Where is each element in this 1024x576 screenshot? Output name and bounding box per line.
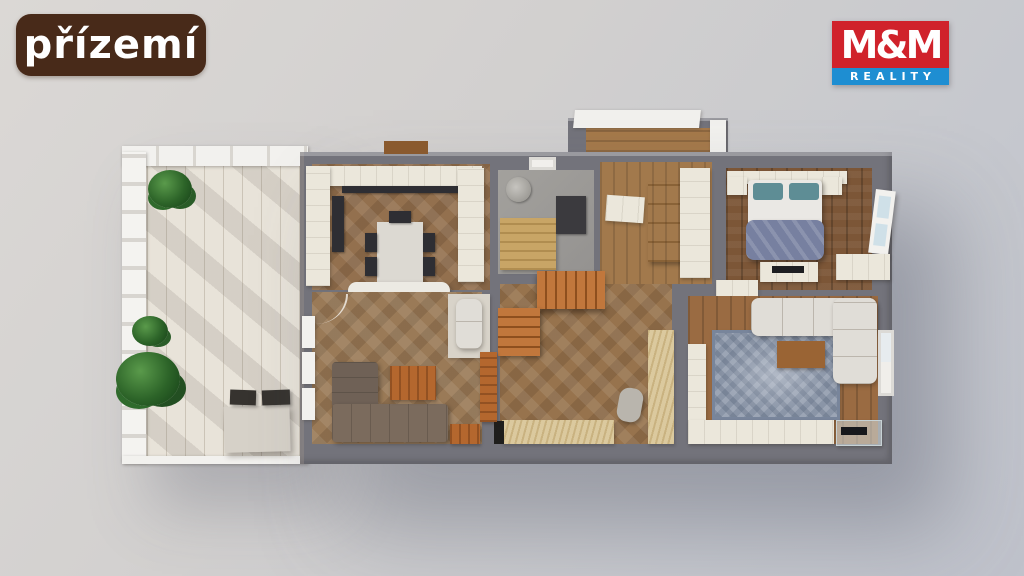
terrace (122, 146, 308, 464)
coffee-table (777, 341, 825, 368)
white-armchair (456, 299, 482, 349)
dining-chair (365, 257, 377, 276)
mm-reality-logo: M&M REALITY (832, 21, 949, 85)
sectional-sofa-right (833, 298, 877, 384)
door-glass-pane (873, 223, 888, 246)
shower (506, 177, 531, 202)
plant (116, 352, 180, 406)
nightstand (727, 177, 747, 195)
door-glass-pane (877, 195, 892, 218)
fridge (332, 196, 344, 252)
staircase-lower-run (498, 308, 540, 356)
entry-shelf (605, 195, 645, 224)
toilet-fixture (556, 196, 586, 234)
bed-duvet (746, 220, 824, 260)
terrace-chair (262, 390, 291, 406)
den-window (302, 388, 315, 420)
dining-chair (365, 233, 377, 252)
pergola-beam (122, 146, 308, 166)
house (300, 110, 900, 464)
den-sofa-seat (332, 404, 448, 442)
bathroom-window (529, 157, 556, 170)
dining-table (377, 222, 423, 284)
den-window (302, 316, 315, 348)
dining-chair (389, 211, 411, 223)
den-desk (480, 352, 497, 422)
terrace-chair (230, 390, 257, 406)
entry-wardrobe (680, 168, 710, 278)
den-stool (450, 424, 480, 444)
terrace-table (223, 405, 290, 453)
dining-bench-right (458, 168, 484, 282)
porch-canopy (573, 110, 701, 128)
sauna-bench (500, 218, 556, 270)
dining-chair (423, 233, 435, 252)
logo-reality-text: REALITY (845, 71, 936, 82)
terrace-edge-sill (122, 456, 308, 464)
partition-end-dark (494, 421, 504, 444)
plant (148, 170, 192, 208)
terrace-railing (122, 152, 146, 462)
cabinets-bottom (688, 420, 834, 444)
logo-top-bar: M&M (832, 21, 949, 68)
den-sofa-back (332, 362, 378, 408)
den-window (302, 352, 315, 384)
den-table (390, 366, 436, 400)
floor-label: přízemí (16, 14, 206, 76)
nightstand (822, 177, 842, 195)
dining-chair (423, 257, 435, 276)
floor-plan-scene: přízemí M&M REALITY (0, 0, 1024, 576)
hall-cabinet (716, 280, 758, 296)
plywood-partition-bottom (502, 420, 614, 444)
pillow (753, 183, 783, 200)
logo-mm-text: M&M (841, 26, 941, 64)
plant (132, 316, 168, 346)
kitchen-counter (342, 186, 460, 193)
kitchen-cabinets-left (306, 166, 330, 286)
pillow (789, 183, 819, 200)
bedroom-closet (836, 254, 890, 280)
staircase-upper-run (537, 271, 605, 309)
plywood-partition-right (648, 330, 674, 444)
living-room-tv (841, 427, 867, 435)
floor-label-text: přízemí (24, 22, 199, 68)
living-room-window (878, 330, 894, 396)
bedroom-tv (772, 266, 804, 273)
logo-bottom-bar: REALITY (832, 68, 949, 85)
front-door (384, 141, 428, 154)
